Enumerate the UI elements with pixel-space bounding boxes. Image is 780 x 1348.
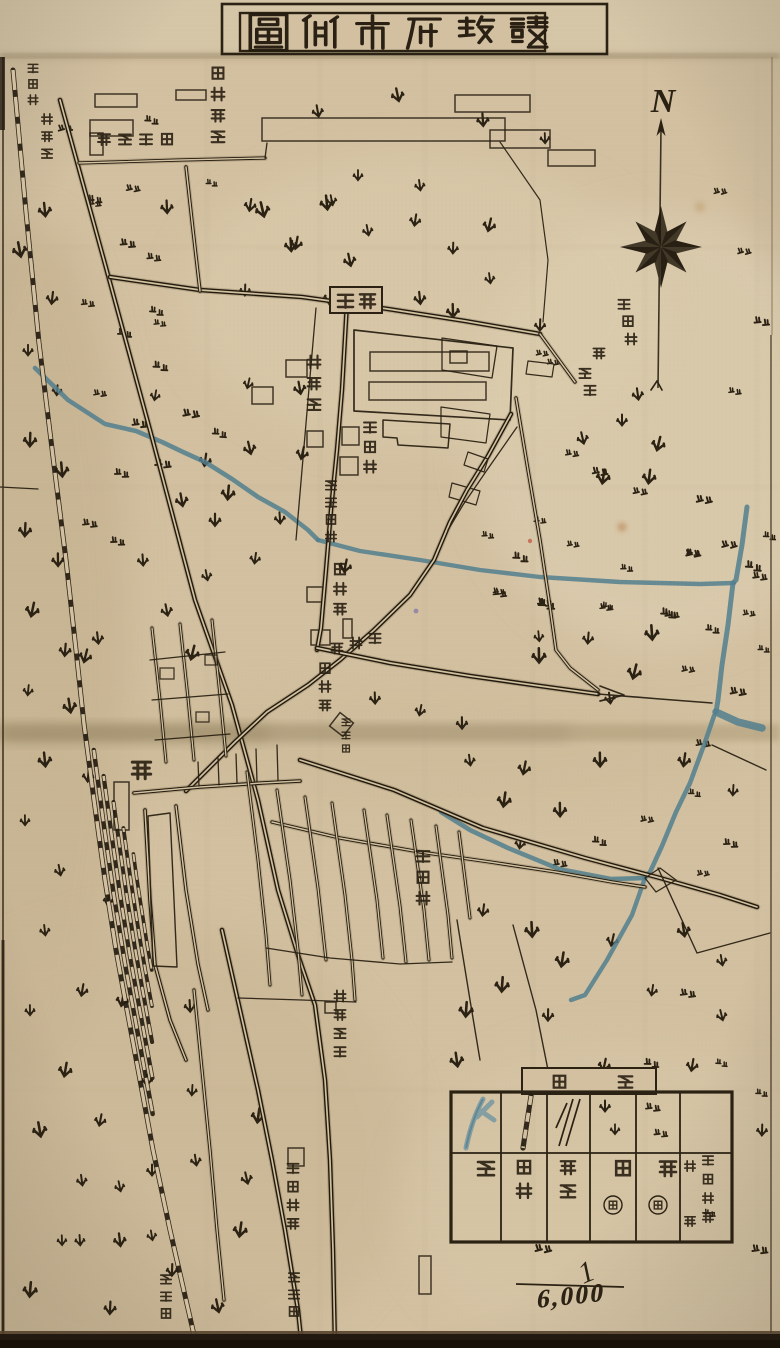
svg-text:N: N <box>650 83 677 120</box>
